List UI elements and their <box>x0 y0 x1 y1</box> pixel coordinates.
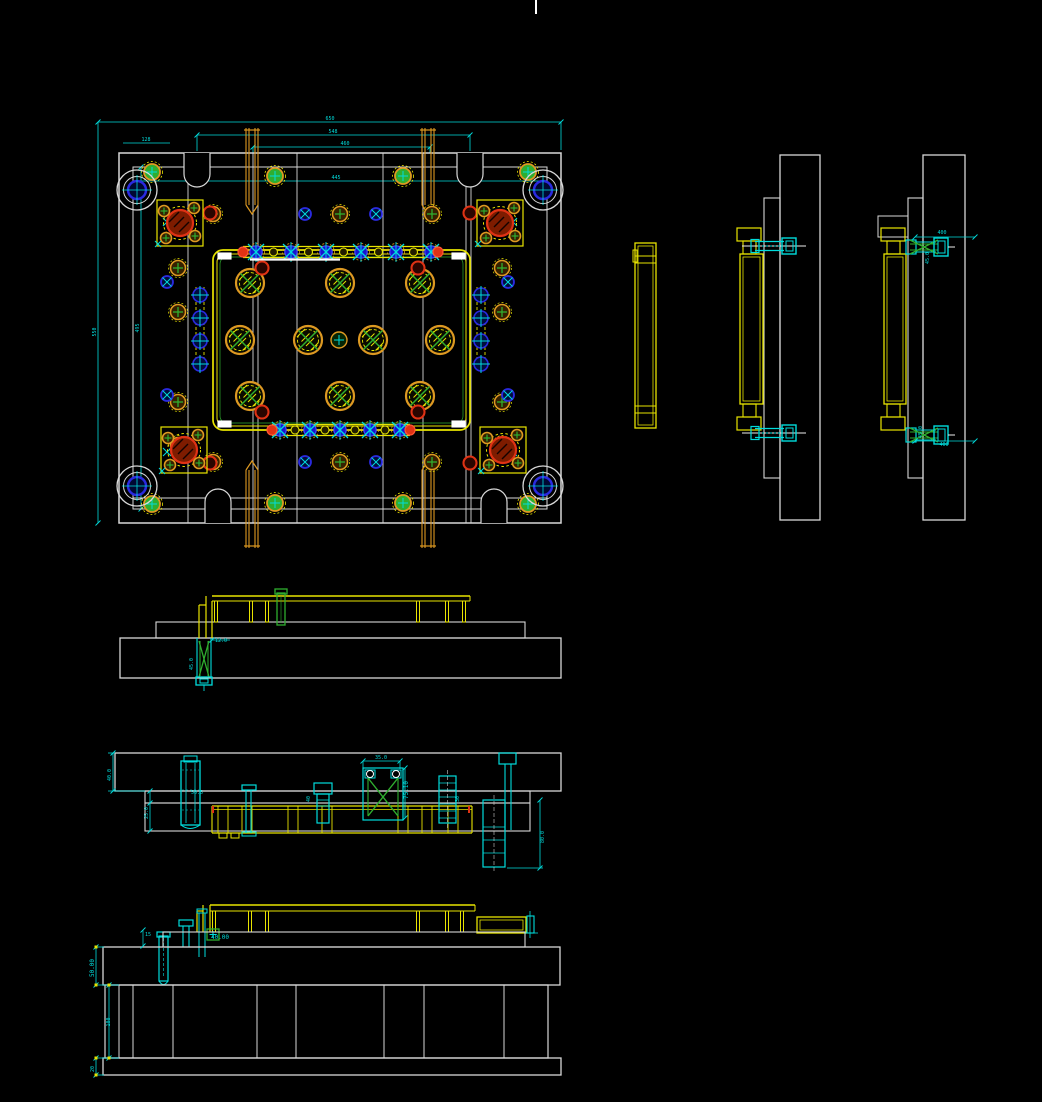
dimension-label: 400 <box>937 230 946 236</box>
dimension-label: 460 <box>340 141 349 147</box>
front-elevation-view <box>120 589 561 691</box>
dimension-label: 650 <box>325 116 334 122</box>
cad-workspace: 65054846012844555049540045.040045.012.04… <box>0 0 1042 1102</box>
plan-view <box>96 120 564 549</box>
dimension-label: 50.00 <box>89 959 96 977</box>
dimension-label: 445 <box>331 175 340 181</box>
dimension-label: 400 <box>939 442 948 448</box>
cad-canvas[interactable]: 65054846012844555049540045.040045.012.04… <box>0 0 1042 1102</box>
dimension-label: 45.0 <box>925 252 931 264</box>
section-view <box>108 751 561 873</box>
dimension-label: 40 <box>306 796 312 802</box>
dimension-label: 12.0 <box>215 638 227 644</box>
dimension-label: 45.0 <box>189 658 195 670</box>
dimension-label: 128 <box>141 137 150 143</box>
dimension-label: 40.0 <box>107 769 113 781</box>
dimension-label: 25.0 <box>144 807 150 819</box>
dimension-label: 80.0 <box>540 831 546 843</box>
dimension-label: 495 <box>135 323 141 332</box>
dimension-label: 550 <box>92 327 98 336</box>
dimension-label: 35.0 <box>375 755 387 761</box>
dimension-label: 40.00 <box>211 934 229 941</box>
dimension-label: 30 <box>455 796 461 802</box>
side-view-middle <box>737 155 820 520</box>
dimension-label: 100 <box>106 1017 112 1026</box>
dimension-label: 15 <box>145 932 151 938</box>
dimension-label: 50.5 <box>191 790 203 796</box>
bottom-elevation-view <box>94 905 562 1078</box>
side-view-right <box>878 155 978 520</box>
dimension-label: 75.10 <box>403 781 410 799</box>
side-view-thin-plate <box>633 243 656 428</box>
cursor-tick <box>535 0 537 14</box>
dimension-label: 20 <box>90 1066 96 1072</box>
dimension-label: 45.0 <box>918 426 924 438</box>
dimension-label: 548 <box>328 129 337 135</box>
